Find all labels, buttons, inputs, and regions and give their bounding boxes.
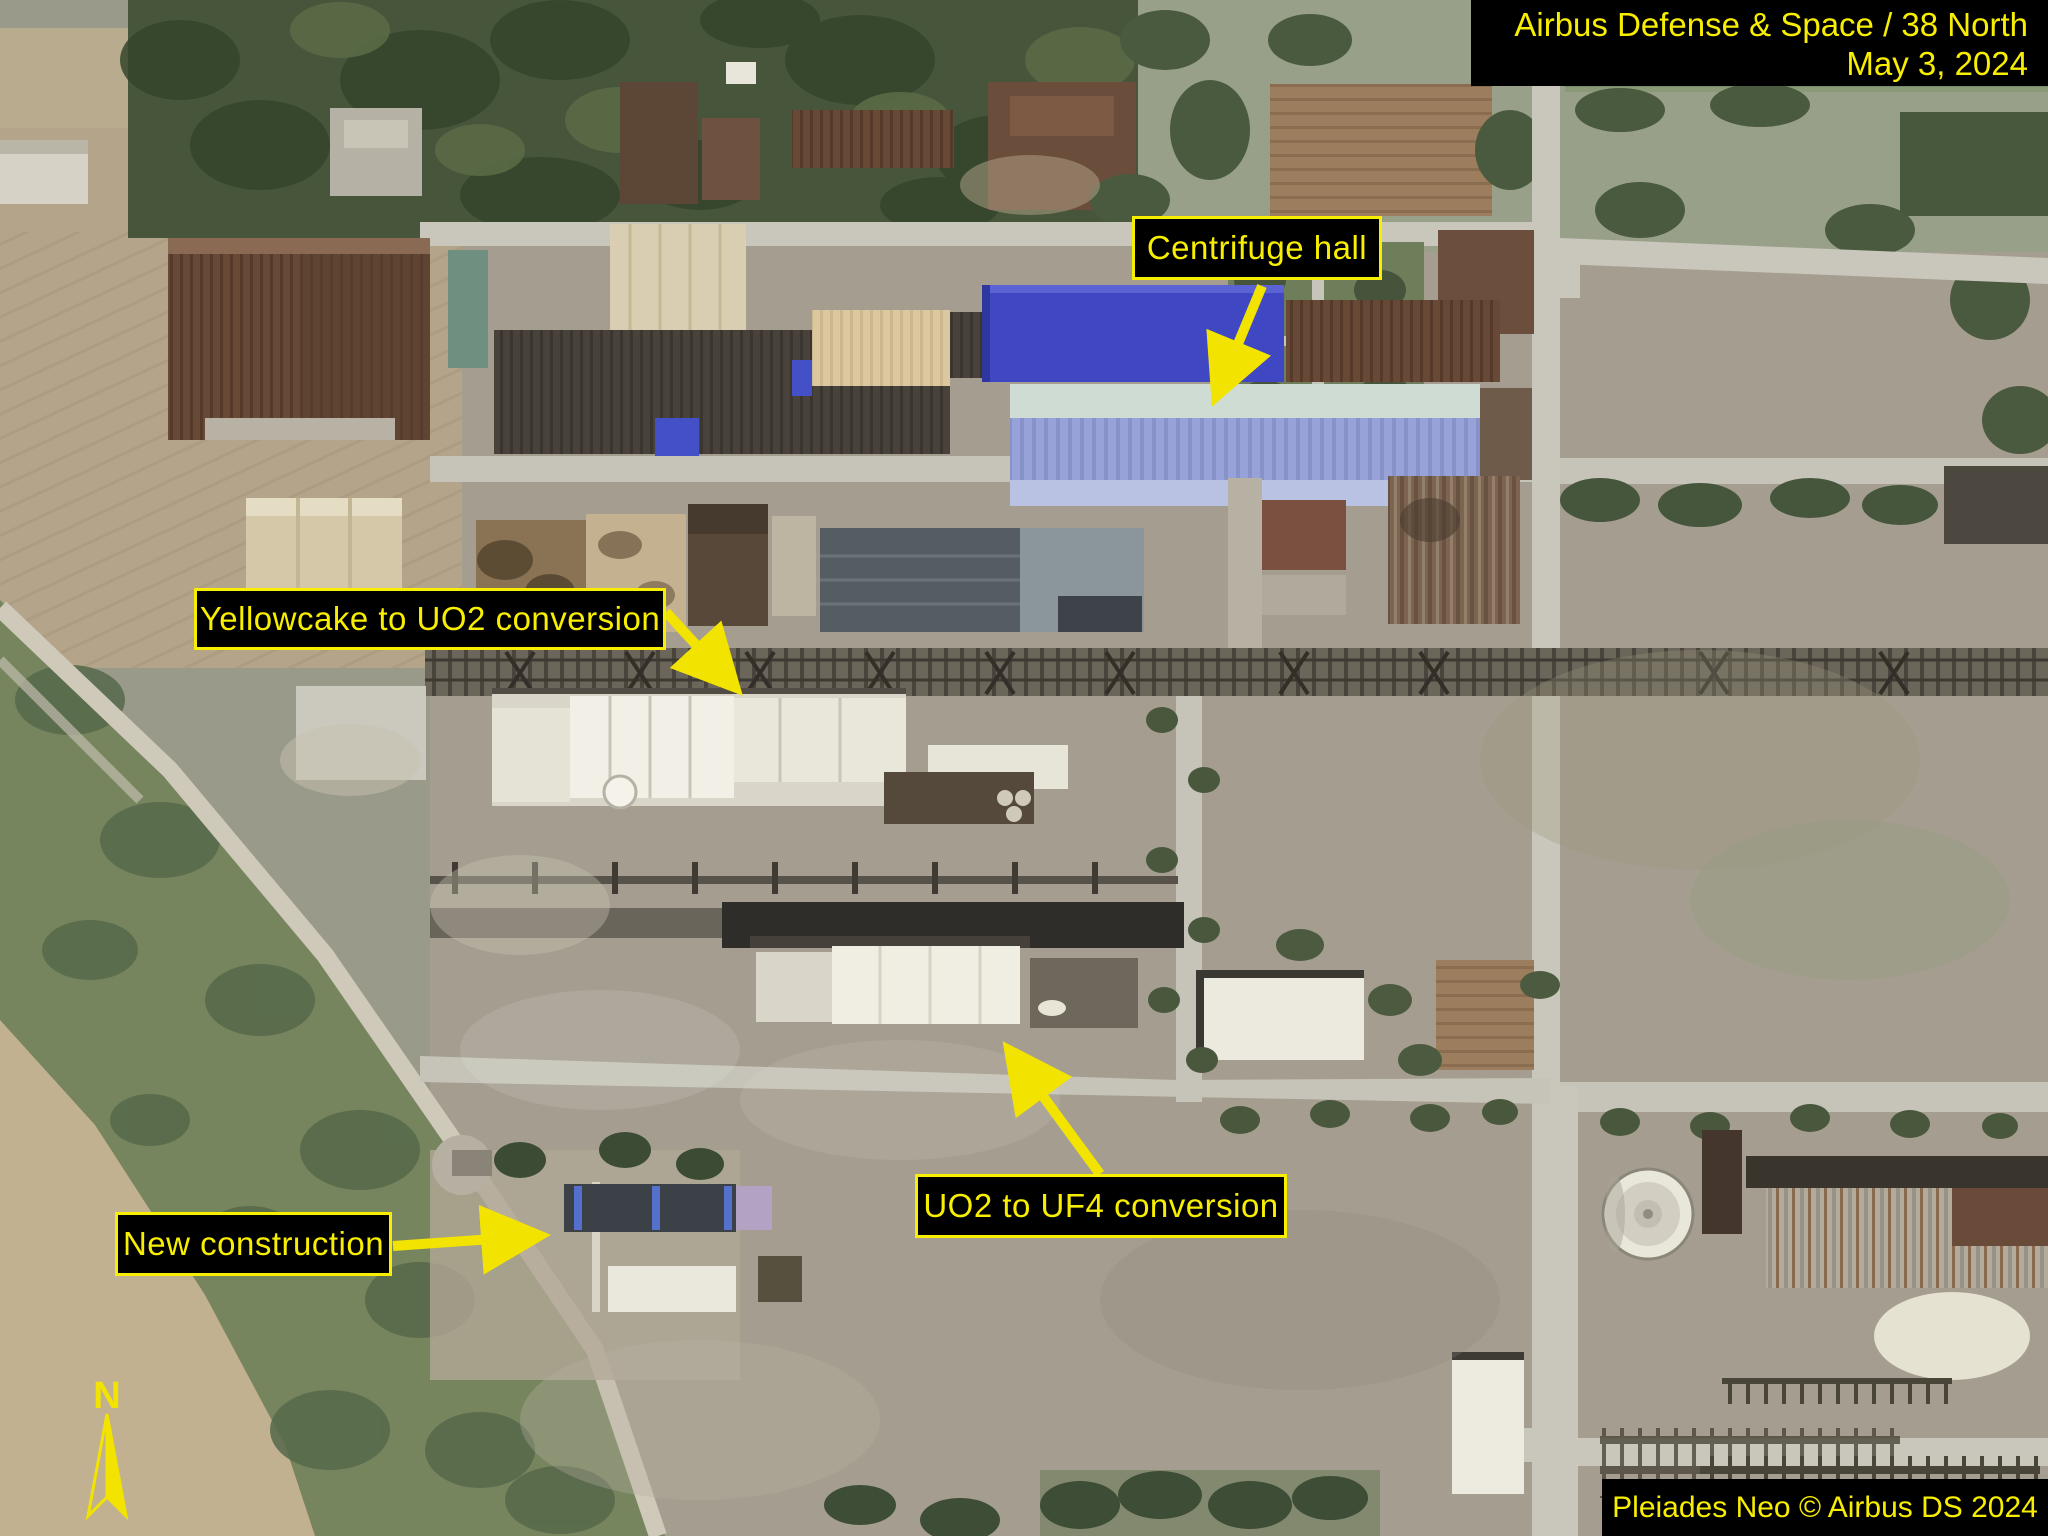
imagery-credit-date: May 3, 2024	[1471, 44, 2028, 83]
uo2-uf4-arrow	[1012, 1054, 1100, 1174]
annotation-overlay: N	[0, 0, 2048, 1536]
centrifuge-hall-label: Centrifuge hall	[1132, 216, 1382, 280]
imagery-source-box: Pleiades Neo © Airbus DS 2024	[1602, 1479, 2048, 1536]
imagery-source-text: Pleiades Neo © Airbus DS 2024	[1612, 1491, 2038, 1525]
north-label: N	[93, 1375, 120, 1417]
new-construction-arrow	[393, 1236, 535, 1246]
new-construction-label-text: New construction	[123, 1225, 384, 1263]
yellowcake-uo2-label-text: Yellowcake to UO2 conversion	[200, 600, 660, 638]
uo2-uf4-label-text: UO2 to UF4 conversion	[923, 1187, 1278, 1225]
yellowcake-uo2-arrow	[666, 612, 732, 684]
centrifuge-hall-arrow	[1218, 286, 1262, 392]
north-arrow-left-half	[88, 1414, 107, 1516]
satellite-figure: N Centrifuge hall Yellowcake to UO2 conv…	[0, 0, 2048, 1536]
centrifuge-hall-label-text: Centrifuge hall	[1147, 229, 1367, 267]
new-construction-label: New construction	[115, 1212, 392, 1276]
imagery-credit-line1: Airbus Defense & Space / 38 North	[1471, 5, 2028, 44]
imagery-credit-box: Airbus Defense & Space / 38 North May 3,…	[1471, 0, 2048, 86]
north-arrow-right-half	[107, 1414, 126, 1516]
yellowcake-uo2-label: Yellowcake to UO2 conversion	[194, 588, 666, 650]
north-compass: N	[88, 1375, 126, 1516]
uo2-uf4-label: UO2 to UF4 conversion	[915, 1174, 1287, 1238]
